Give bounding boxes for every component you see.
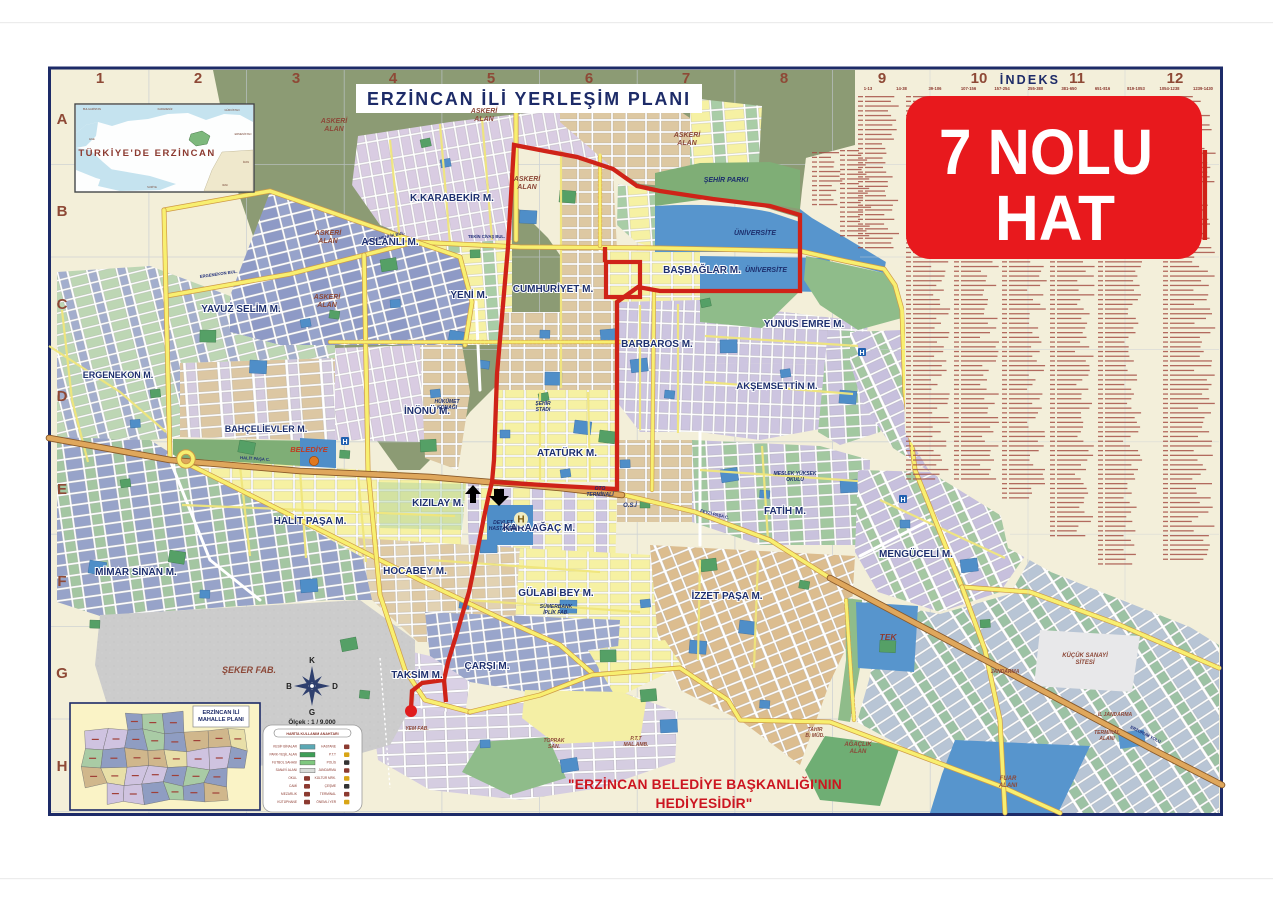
svg-text:Ölçek : 1 / 9.000: Ölçek : 1 / 9.000 (288, 717, 336, 726)
svg-text:MAHALLE PLANI: MAHALLE PLANI (198, 717, 244, 723)
svg-text:K.KARABEKİR M.: K.KARABEKİR M. (410, 191, 494, 204)
svg-text:255-380: 255-380 (1028, 86, 1044, 91)
svg-text:IRAK: IRAK (222, 183, 228, 187)
svg-text:ALAN: ALAN (849, 749, 867, 755)
svg-text:MEZARLIK: MEZARLIK (281, 792, 298, 796)
svg-text:SÜMERBANK: SÜMERBANK (540, 603, 573, 610)
svg-text:ÇARŞI M.: ÇARŞI M. (465, 661, 510, 672)
svg-text:KÜÇÜK SANAYİ: KÜÇÜK SANAYİ (1062, 652, 1108, 659)
svg-text:1-13: 1-13 (864, 86, 873, 91)
svg-text:ALANI: ALANI (1098, 736, 1115, 742)
svg-text:İNDEKS: İNDEKS (1000, 72, 1060, 87)
svg-text:14-38: 14-38 (896, 86, 907, 91)
svg-text:POLİS: POLİS (327, 759, 336, 764)
svg-text:CAMİ: CAMİ (289, 783, 297, 788)
svg-text:İL JANDARMA: İL JANDARMA (1098, 711, 1133, 718)
svg-text:MİMAR SİNAN M.: MİMAR SİNAN M. (95, 565, 177, 578)
svg-text:SANAYİ ALANI: SANAYİ ALANI (276, 767, 297, 772)
svg-text:ERZİNCAN İLİ YERLEŞİM PLANI: ERZİNCAN İLİ YERLEŞİM PLANI (367, 88, 691, 109)
svg-text:C: C (57, 296, 68, 313)
svg-text:ALAN: ALAN (316, 302, 337, 309)
svg-text:TERMİNAL: TERMİNAL (320, 791, 336, 796)
svg-text:KONAĞI: KONAĞI (437, 403, 458, 411)
svg-text:ÜNİVERSİTE: ÜNİVERSİTE (745, 265, 787, 274)
svg-text:G: G (56, 665, 68, 682)
svg-text:ŞEHİR PARKI: ŞEHİR PARKI (704, 176, 750, 184)
svg-text:2: 2 (194, 70, 202, 87)
svg-text:1: 1 (96, 70, 104, 87)
svg-text:HEDİYESİDİR": HEDİYESİDİR" (655, 795, 752, 811)
svg-text:ŞEHİR: ŞEHİR (535, 400, 551, 407)
svg-text:GÜLABİ BEY M.: GÜLABİ BEY M. (518, 586, 594, 599)
svg-text:12: 12 (1167, 70, 1184, 87)
svg-text:ERGENEKON M.: ERGENEKON M. (83, 370, 154, 380)
svg-text:BAŞBAĞLAR M.: BAŞBAĞLAR M. (663, 263, 741, 276)
svg-text:ASKERİ: ASKERİ (320, 117, 349, 125)
svg-text:651-816: 651-816 (1095, 86, 1111, 91)
svg-text:H: H (517, 515, 524, 526)
svg-text:YAVUZ SELİM M.: YAVUZ SELİM M. (201, 302, 281, 315)
svg-text:D: D (57, 388, 68, 405)
svg-text:ALAN: ALAN (676, 140, 697, 147)
svg-text:FUAR: FUAR (1000, 776, 1017, 782)
svg-text:ASKERİ: ASKERİ (513, 175, 542, 183)
svg-text:HASTANE: HASTANE (321, 745, 336, 749)
svg-text:TERMİNAL: TERMİNAL (1094, 729, 1120, 736)
svg-text:F: F (57, 573, 66, 590)
svg-text:BARBAROS M.: BARBAROS M. (621, 339, 693, 350)
svg-text:A: A (57, 111, 68, 128)
svg-text:K: K (309, 656, 315, 665)
svg-text:157-254: 157-254 (994, 86, 1010, 91)
svg-text:PARK-YEŞİL ALAN: PARK-YEŞİL ALAN (270, 751, 298, 756)
svg-text:HAT: HAT (995, 182, 1115, 254)
svg-text:ALAN: ALAN (473, 116, 494, 123)
svg-text:ÖNEMLİ YER: ÖNEMLİ YER (316, 799, 336, 804)
svg-text:ERZİNCAN İLİ: ERZİNCAN İLİ (203, 709, 240, 716)
svg-text:YENİ M.: YENİ M. (450, 288, 487, 301)
svg-text:1239-1430: 1239-1430 (1193, 86, 1214, 91)
svg-text:D: D (332, 682, 338, 691)
svg-text:O.S.İ: O.S.İ (623, 502, 637, 509)
svg-text:H: H (900, 497, 905, 504)
svg-text:BAHÇELİEVLER M.: BAHÇELİEVLER M. (225, 424, 308, 434)
svg-text:FUTBOL SAHASI: FUTBOL SAHASI (272, 760, 297, 764)
svg-text:"ERZİNCAN BELEDİYE BAŞKANLIĞI': "ERZİNCAN BELEDİYE BAŞKANLIĞI'NIN (568, 775, 842, 792)
svg-text:TEK: TEK (880, 632, 898, 642)
svg-text:G: G (309, 708, 315, 717)
svg-text:3: 3 (292, 70, 300, 87)
svg-text:ALAN: ALAN (323, 126, 344, 133)
svg-text:STADI: STADI (536, 407, 551, 413)
svg-text:EGE: EGE (89, 137, 95, 141)
svg-text:HÜKÜMET: HÜKÜMET (435, 398, 461, 405)
svg-text:TÜRKİYE'DE ERZİNCAN: TÜRKİYE'DE ERZİNCAN (78, 148, 215, 159)
svg-text:ÇEŞME: ÇEŞME (325, 784, 336, 788)
svg-text:H: H (859, 350, 864, 357)
svg-text:ATATÜRK M.: ATATÜRK M. (537, 446, 597, 459)
svg-text:OKUL: OKUL (288, 776, 297, 780)
svg-text:ASKERİ: ASKERİ (313, 293, 342, 301)
svg-text:HALİT PAŞA M.: HALİT PAŞA M. (274, 514, 347, 527)
svg-text:AKŞEMSETTİN M.: AKŞEMSETTİN M. (736, 381, 817, 392)
svg-text:HASTANESİ: HASTANESİ (489, 525, 518, 532)
svg-text:SAN.: SAN. (548, 744, 560, 750)
svg-text:SİTESİ: SİTESİ (1075, 659, 1094, 666)
svg-text:KÜLTÜR MRK.: KÜLTÜR MRK. (315, 776, 336, 780)
svg-text:BELEDİYE: BELEDİYE (290, 445, 329, 454)
svg-text:TEKİN CİVAŞ BUL.: TEKİN CİVAŞ BUL. (468, 234, 505, 239)
svg-text:ASKERİ: ASKERİ (673, 131, 702, 139)
svg-text:JANDARMA: JANDARMA (318, 768, 336, 772)
svg-text:HOCABEY M.: HOCABEY M. (383, 566, 447, 577)
svg-text:P.T.T: P.T.T (329, 752, 336, 756)
svg-text:İZZET PAŞA M.: İZZET PAŞA M. (691, 589, 762, 602)
svg-text:KESİF BİNALAR: KESİF BİNALAR (273, 744, 297, 749)
svg-text:KIZILAY M.: KIZILAY M. (412, 498, 464, 509)
svg-text:ALAN: ALAN (516, 184, 537, 191)
svg-text:B. MÜD.: B. MÜD. (805, 732, 824, 739)
svg-text:MESLEK YÜKSEK: MESLEK YÜKSEK (774, 470, 817, 477)
svg-text:MAL.AMB.: MAL.AMB. (624, 742, 649, 748)
svg-text:10: 10 (971, 70, 988, 87)
svg-text:B: B (286, 682, 292, 691)
svg-text:9: 9 (878, 70, 886, 87)
svg-text:7 NOLU: 7 NOLU (939, 116, 1153, 188)
svg-text:ASKERİ: ASKERİ (470, 107, 499, 115)
svg-text:YUNUS EMRE M.: YUNUS EMRE M. (764, 319, 845, 330)
svg-text:CUMHURİYET M.: CUMHURİYET M. (513, 282, 594, 295)
svg-text:TAKSİM M.: TAKSİM M. (391, 668, 443, 681)
svg-text:11: 11 (1069, 70, 1085, 87)
svg-text:H: H (342, 439, 347, 446)
svg-text:ÜNİVERSİTE: ÜNİVERSİTE (734, 228, 776, 237)
svg-text:819-1053: 819-1053 (1127, 86, 1145, 91)
svg-text:H: H (57, 758, 68, 775)
svg-text:KÜTÜPHANE: KÜTÜPHANE (277, 800, 297, 804)
svg-text:AĞAÇLIK: AĞAÇLIK (843, 740, 872, 748)
svg-text:39-106: 39-106 (928, 86, 942, 91)
svg-text:OKULU: OKULU (786, 477, 804, 483)
svg-text:ŞEKER FAB.: ŞEKER FAB. (222, 665, 276, 675)
svg-text:YEM FAB.: YEM FAB. (405, 726, 429, 732)
svg-text:E: E (57, 481, 67, 498)
svg-text:B: B (57, 203, 68, 220)
svg-text:ALANI: ALANI (998, 783, 1018, 789)
svg-text:8: 8 (780, 70, 788, 87)
svg-text:ALAN: ALAN (317, 238, 338, 245)
svg-text:ASKERİ: ASKERİ (314, 229, 343, 237)
svg-text:JANDARMA: JANDARMA (991, 669, 1020, 675)
svg-text:HARİTA KULLANIM ANAHTARI: HARİTA KULLANIM ANAHTARI (286, 732, 338, 736)
svg-text:İPLİK FAB.: İPLİK FAB. (543, 609, 569, 616)
svg-text:FATİH M.: FATİH M. (764, 504, 806, 517)
svg-text:MENGÜCELİ M.: MENGÜCELİ M. (879, 547, 953, 560)
svg-text:TERMİNALİ: TERMİNALİ (586, 491, 614, 498)
